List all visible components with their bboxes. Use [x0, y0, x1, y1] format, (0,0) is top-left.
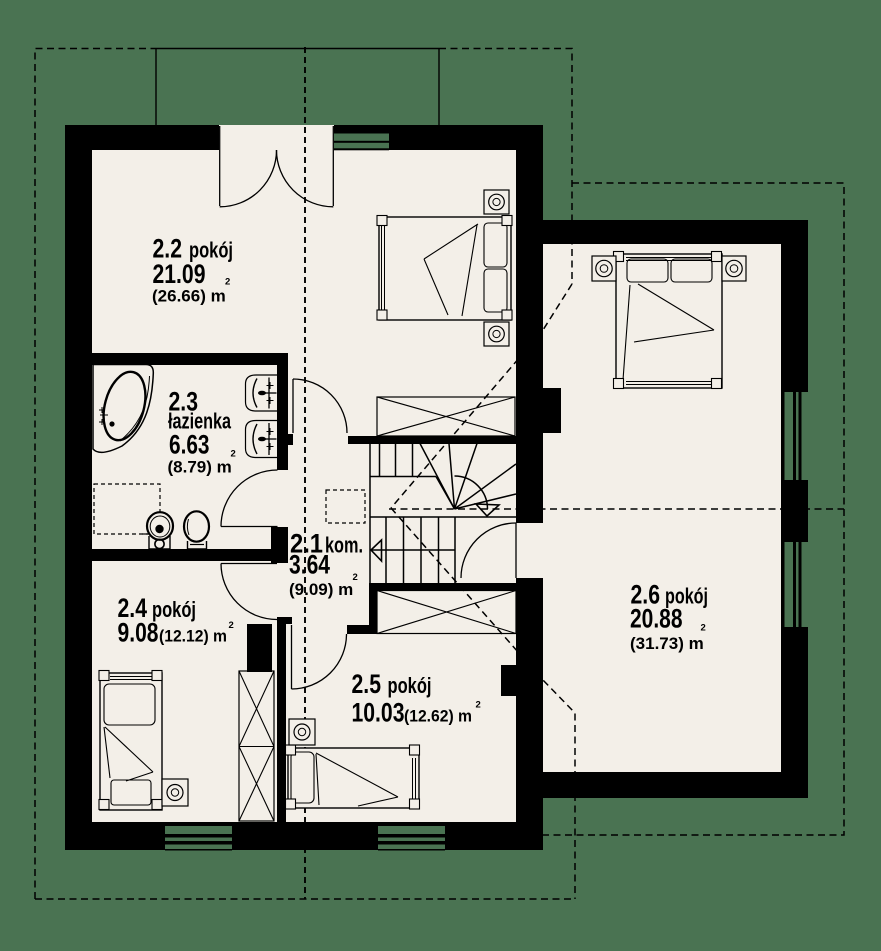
- svg-text:6.63: 6.63: [169, 430, 210, 460]
- svg-text:9.08: 9.08: [118, 618, 159, 648]
- svg-text:pokój: pokój: [388, 673, 432, 698]
- svg-text:2: 2: [353, 572, 358, 583]
- svg-text:(12.62) m: (12.62) m: [404, 707, 472, 726]
- svg-text:2: 2: [229, 620, 234, 631]
- svg-text:(31.73) m: (31.73) m: [630, 634, 704, 653]
- svg-text:kom.: kom.: [325, 533, 363, 558]
- svg-text:2: 2: [231, 449, 236, 460]
- svg-text:(8.79) m: (8.79) m: [168, 458, 232, 477]
- svg-text:20.88: 20.88: [630, 604, 683, 634]
- svg-text:3.64: 3.64: [289, 550, 330, 580]
- svg-text:2: 2: [225, 277, 230, 288]
- svg-text:2: 2: [476, 700, 481, 711]
- svg-text:(9.09) m: (9.09) m: [289, 580, 353, 599]
- svg-text:(26.66) m: (26.66) m: [152, 287, 226, 306]
- svg-text:2.5: 2.5: [352, 669, 382, 699]
- svg-text:2: 2: [701, 623, 706, 634]
- svg-text:pokój: pokój: [152, 597, 196, 622]
- svg-text:10.03: 10.03: [352, 698, 405, 728]
- svg-text:21.09: 21.09: [153, 259, 206, 289]
- svg-text:(12.12) m: (12.12) m: [159, 627, 227, 646]
